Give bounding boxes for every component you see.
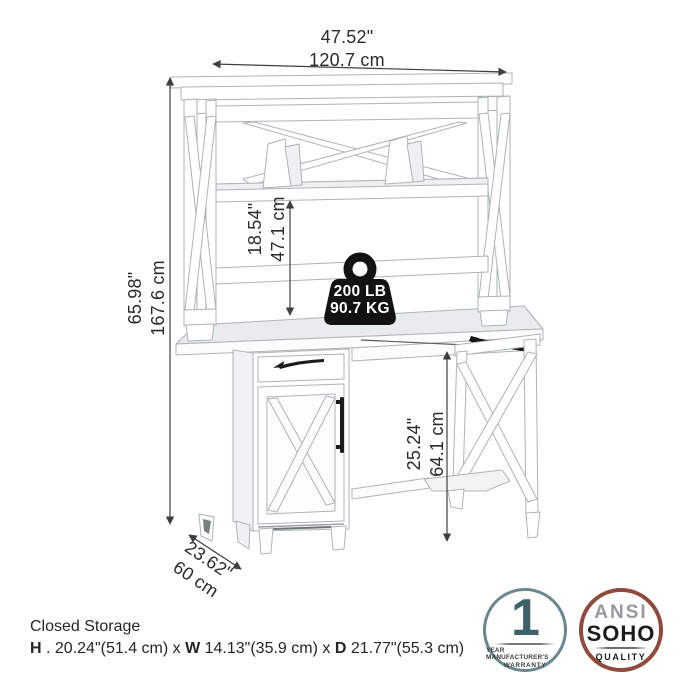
warranty-text-line2: WARRANTY — [504, 662, 547, 669]
width-dimension-label: 47.52" 120.7 cm — [267, 26, 427, 72]
desk-with-hutch-illustration — [0, 0, 700, 700]
cabinet — [199, 349, 349, 554]
hutch-crown — [171, 73, 512, 100]
knee-space-dimension-label: 25.24" 64.1 cm — [403, 384, 449, 504]
cabinet-drawer — [258, 354, 344, 382]
closed-storage-title: Closed Storage — [30, 616, 464, 638]
weight-capacity-label: 200 LB 90.7 KG — [320, 283, 400, 317]
warranty-text-line1: YEAR MANUFACTURER'S — [486, 647, 564, 661]
shelf-bracket-right — [385, 136, 424, 184]
closed-storage-dimensions: H . 20.24"(51.4 cm) x W 14.13"(35.9 cm) … — [30, 638, 464, 660]
cabinet-door — [258, 384, 344, 524]
hutch-right-side-x-frame — [478, 96, 510, 326]
quality-text: QUALITY — [596, 652, 647, 662]
hutch-opening-dimension-label: 18.54" 47.1 cm — [244, 169, 290, 289]
soho-text: SOHO — [587, 622, 656, 645]
ansi-soho-quality-badge: ANSI SOHO QUALITY — [579, 588, 663, 672]
product-dimension-diagram: 47.52" 120.7 cm 65.98" 167.6 cm 18.54" 4… — [0, 0, 700, 700]
hutch-left-side-x-frame — [184, 99, 216, 341]
ansi-text: ANSI — [594, 603, 647, 622]
warranty-badge: 1 YEAR MANUFACTURER'S WARRANTY — [483, 588, 567, 672]
quality-separator-line — [594, 647, 648, 649]
height-dimension-label: 65.98" 167.6 cm — [124, 238, 170, 358]
warranty-separator-line — [494, 643, 556, 645]
desk — [176, 329, 543, 554]
closed-storage-info: Closed Storage H . 20.24"(51.4 cm) x W 1… — [30, 616, 464, 660]
warranty-number: 1 — [511, 594, 539, 642]
